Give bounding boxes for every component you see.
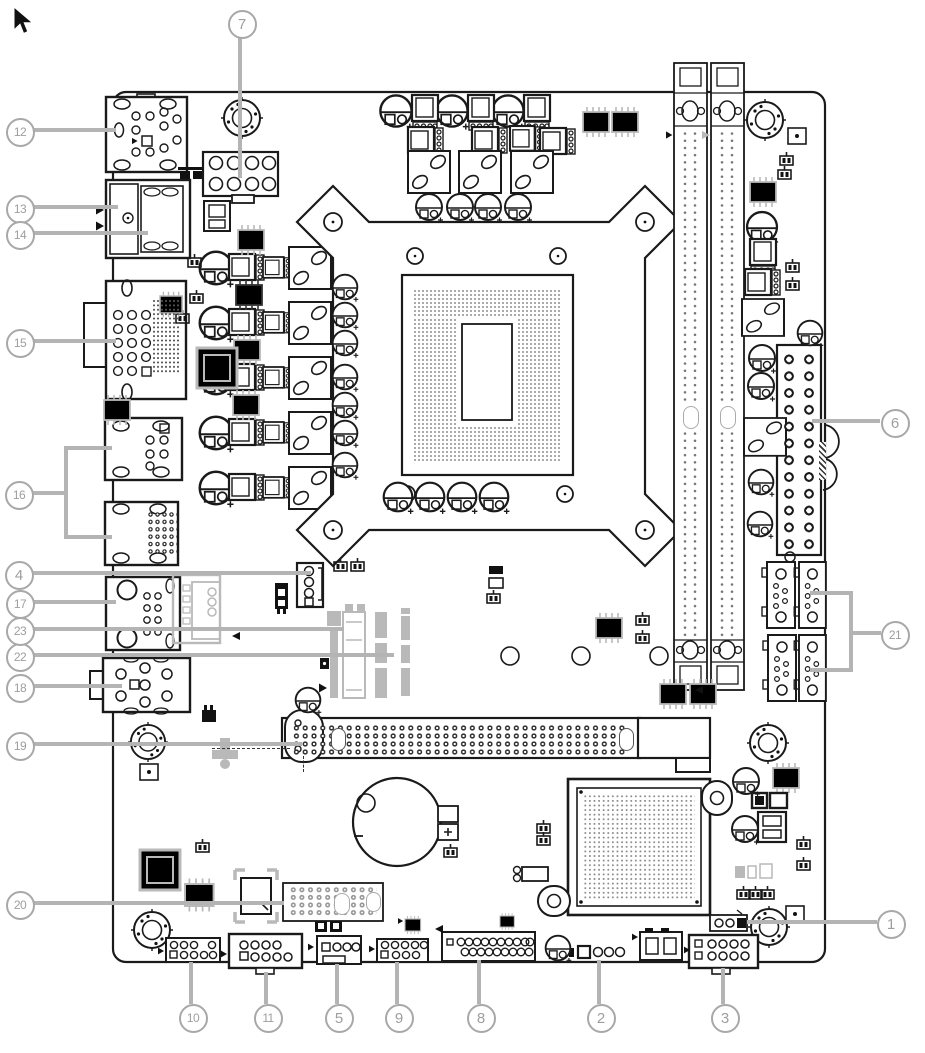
callout-6-atx-power-connector: 6 bbox=[881, 409, 910, 438]
leader-line-11 bbox=[264, 972, 268, 1004]
callout-5-fan-connector: 5 bbox=[325, 1004, 354, 1033]
mouse-cursor-icon bbox=[12, 6, 38, 36]
callout-12-usb-ports: 12 bbox=[6, 118, 35, 147]
leader-line-10 bbox=[189, 962, 193, 1004]
dimm2-key bbox=[720, 406, 736, 429]
leader-line-17 bbox=[30, 600, 116, 604]
callout-21-sata-connectors: 21 bbox=[881, 621, 910, 650]
motherboard-diagram: 1234567891011121314151617181920212223 bbox=[0, 0, 925, 1053]
leader-line-20 bbox=[30, 901, 284, 905]
chipset-bga-field bbox=[583, 794, 695, 900]
cpu-pin-field bbox=[517, 318, 561, 426]
usb-ports-mid bbox=[106, 577, 180, 650]
atx-latch bbox=[819, 442, 826, 480]
callout-11-usb-header: 11 bbox=[254, 1004, 283, 1033]
smd-box-bottom bbox=[632, 928, 682, 960]
header-10 bbox=[158, 938, 220, 962]
callout-20-pin-header-block: 20 bbox=[6, 891, 35, 920]
leader-line-6 bbox=[812, 419, 880, 423]
leader-line-16 bbox=[64, 446, 68, 539]
leader-line-7 bbox=[238, 34, 242, 178]
leader-line-3 bbox=[721, 968, 725, 1004]
header20-key bbox=[334, 893, 350, 915]
leader-line-21 bbox=[853, 631, 881, 635]
dashed-guide bbox=[212, 748, 290, 749]
callout-7-cpu-power-connector: 7 bbox=[228, 10, 257, 39]
leader-line-22 bbox=[30, 653, 394, 657]
leader-line-18 bbox=[30, 684, 122, 688]
atx-pin-field bbox=[779, 351, 819, 552]
vga-pin-field bbox=[152, 299, 181, 373]
cpu-socket-assembly bbox=[297, 186, 681, 566]
leader-line-14 bbox=[30, 231, 148, 235]
leader-line-19 bbox=[30, 742, 302, 746]
dimm2-pins bbox=[717, 430, 738, 638]
leader-line-4 bbox=[29, 571, 311, 575]
callout-2-4-pin-header: 2 bbox=[587, 1004, 616, 1033]
callout-19-expansion-slot: 19 bbox=[6, 732, 35, 761]
leader-line-21 bbox=[810, 591, 849, 595]
callout-15-vga-port: 15 bbox=[6, 329, 35, 358]
dimm2-pins bbox=[717, 130, 738, 404]
leader-line-16 bbox=[29, 491, 66, 495]
callout-9-2x5-header: 9 bbox=[385, 1004, 414, 1033]
callout-17-usb-ports: 17 bbox=[6, 590, 35, 619]
leader-line-8 bbox=[477, 960, 481, 1004]
dimm1-key bbox=[683, 406, 699, 429]
cpu-pin-field bbox=[413, 426, 561, 463]
slot-key bbox=[331, 728, 346, 751]
leader-line-16 bbox=[66, 446, 112, 450]
video-ports bbox=[96, 180, 190, 258]
socket-die bbox=[462, 324, 512, 420]
leader-line-1 bbox=[747, 920, 877, 924]
header20-pins bbox=[289, 886, 377, 916]
callout-23-m2-slot: 23 bbox=[6, 617, 35, 646]
dimm1-pins bbox=[680, 430, 701, 638]
callout-14-hdmi-port: 14 bbox=[6, 221, 35, 250]
header20-key bbox=[366, 892, 381, 912]
callout-22-m2-slot: 22 bbox=[6, 643, 35, 672]
leader-line-13 bbox=[30, 205, 118, 209]
callout-18-audio-jacks: 18 bbox=[6, 674, 35, 703]
leader-line-15 bbox=[30, 339, 116, 343]
callout-10-2x5-header: 10 bbox=[179, 1004, 208, 1033]
callout-3-2x5-header: 3 bbox=[711, 1004, 740, 1033]
usb-ports-top bbox=[106, 97, 187, 172]
dimm1-pins bbox=[680, 130, 701, 404]
callout-13-display-port: 13 bbox=[6, 195, 35, 224]
cpu-pin-field bbox=[413, 289, 561, 318]
lan-pin-grid bbox=[147, 511, 177, 555]
callout-16-usb-lan-ports: 16 bbox=[5, 481, 34, 510]
cpu-pin-field bbox=[413, 318, 456, 426]
leader-line-12 bbox=[30, 128, 116, 132]
callout-8-front-panel-header: 8 bbox=[467, 1004, 496, 1033]
slot-key bbox=[619, 728, 634, 751]
callout-1-jumper: 1 bbox=[877, 910, 906, 939]
leader-line-23 bbox=[30, 627, 344, 631]
dashed-guide bbox=[303, 756, 304, 772]
leader-line-21 bbox=[810, 668, 849, 672]
usb-header-11 bbox=[221, 934, 302, 974]
leader-line-2 bbox=[597, 960, 601, 1004]
callout-4-4-pin-connector: 4 bbox=[5, 561, 34, 590]
leader-line-5 bbox=[335, 964, 339, 1004]
leader-line-16 bbox=[66, 535, 112, 539]
leader-line-9 bbox=[395, 962, 399, 1004]
